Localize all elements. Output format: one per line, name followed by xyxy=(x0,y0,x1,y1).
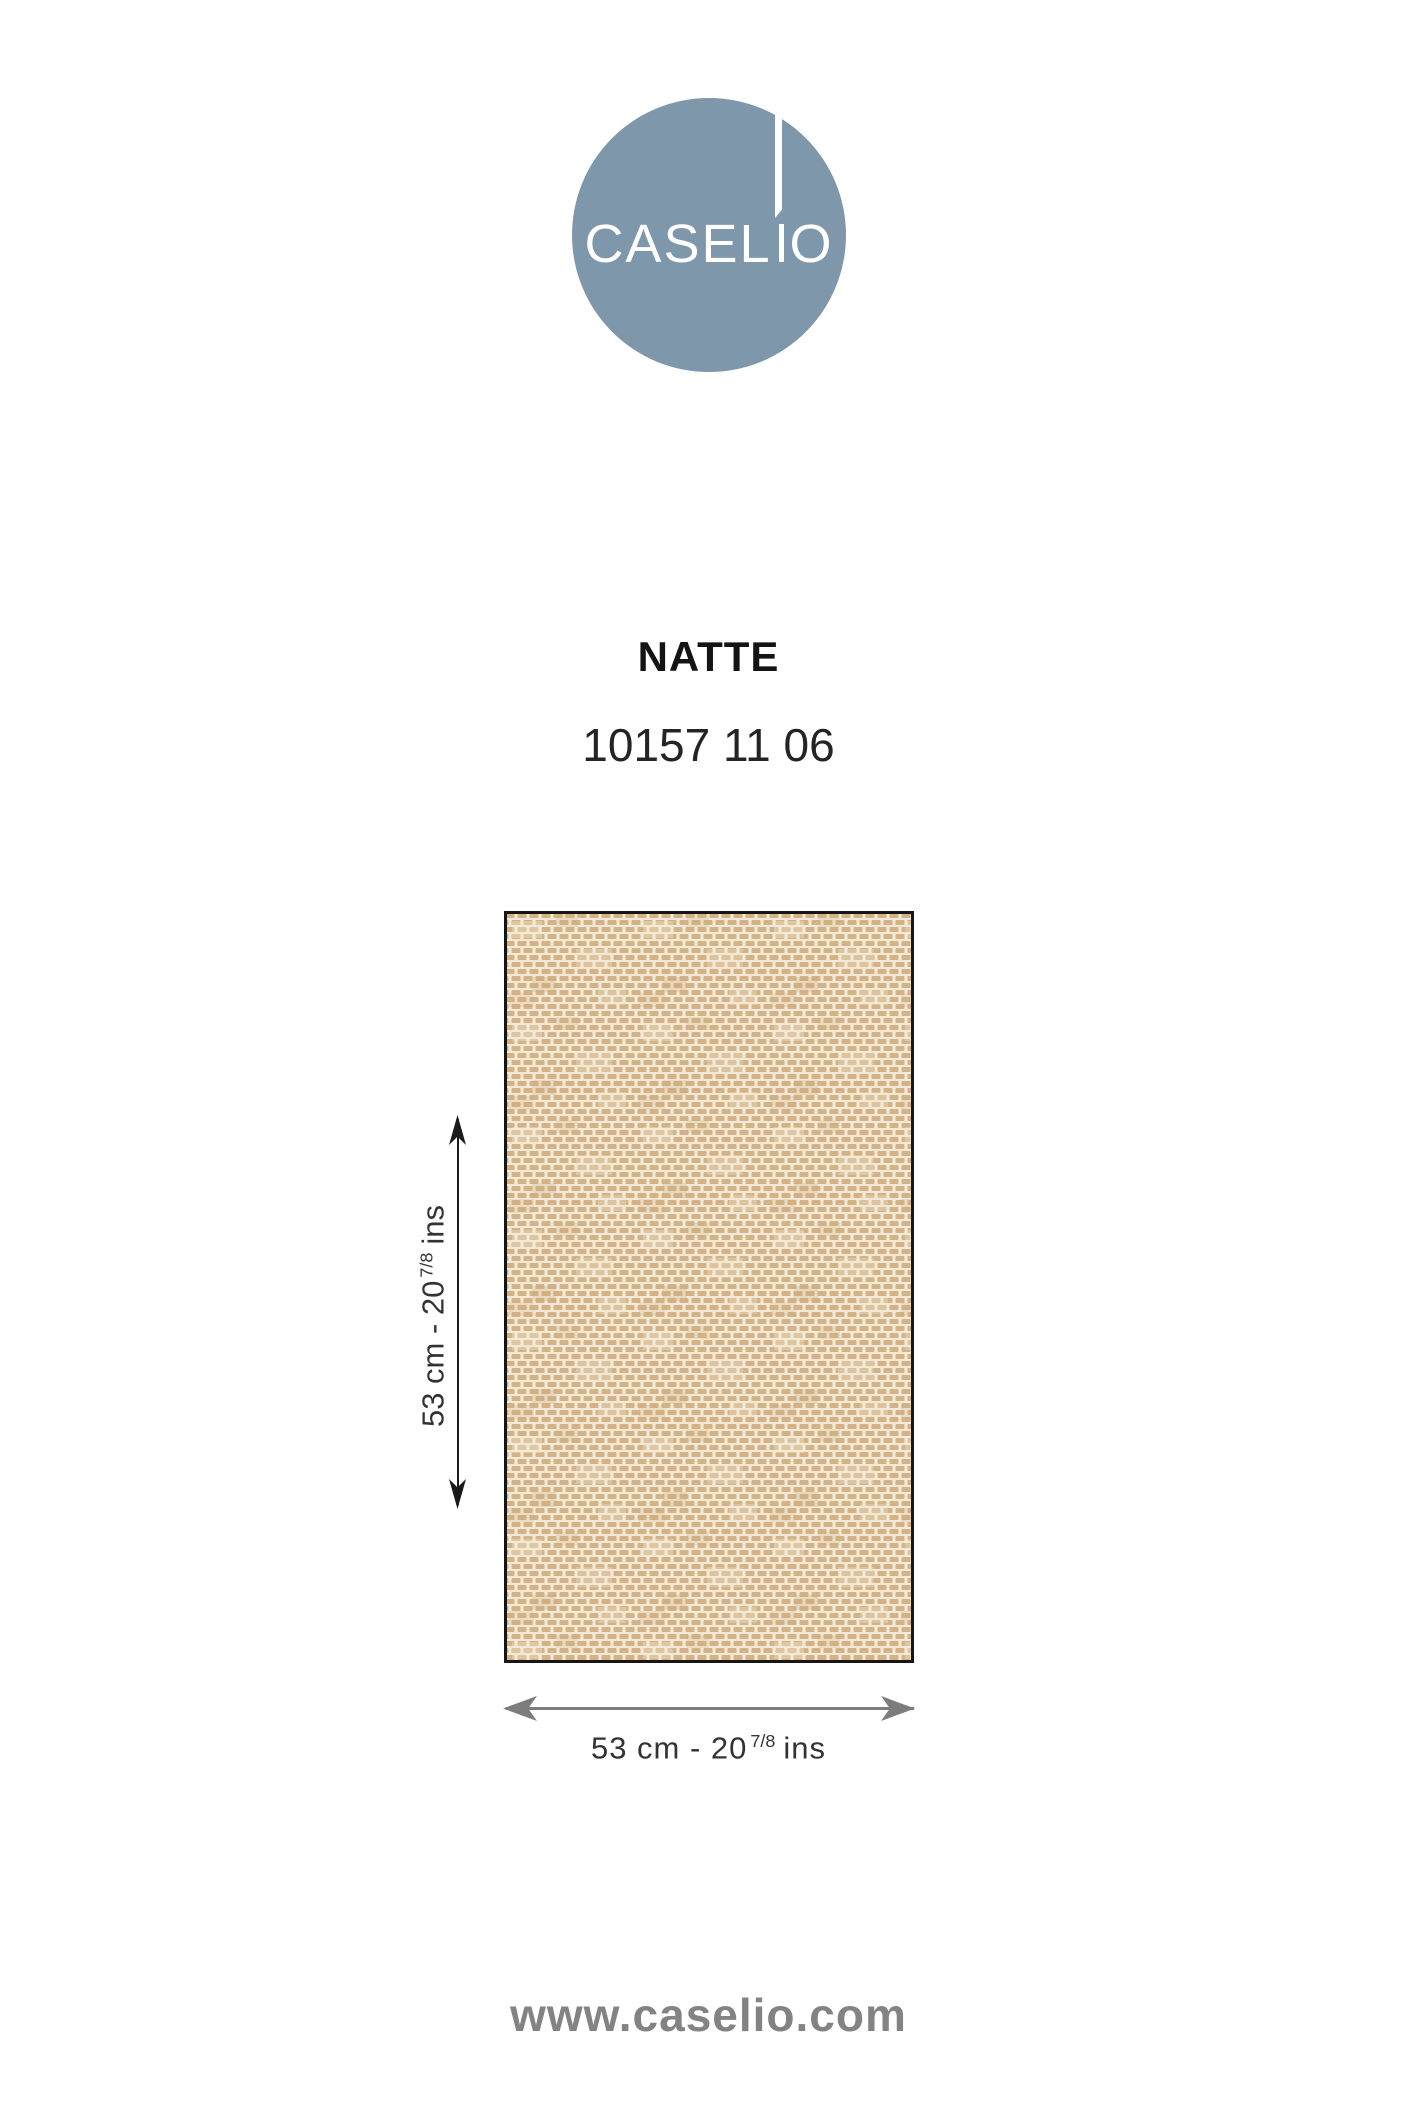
width-dimension-label: 53 cm - 207/8ins xyxy=(0,1732,1417,1763)
spec-sheet-page: CASELO NATTE 10157 11 06 xyxy=(0,0,1417,2126)
swatch-mottle-overlay xyxy=(504,911,914,1663)
website-link[interactable]: www.caselio.com xyxy=(0,1992,1417,2038)
logo-i-stem-icon xyxy=(775,98,782,218)
logo-wordmark-post: O xyxy=(790,214,834,274)
logo-wordmark: CASELO xyxy=(584,217,833,271)
vertical-dimension-line xyxy=(457,1119,459,1505)
height-dimension-label: 53 cm - 207/8ins xyxy=(417,1205,448,1427)
caselio-logo: CASELO xyxy=(572,98,846,372)
product-name: NATTE xyxy=(0,636,1417,678)
logo-i-bar-icon xyxy=(779,224,784,262)
height-fraction: 7/8 xyxy=(416,1253,436,1278)
width-fraction: 7/8 xyxy=(750,1731,775,1751)
wallpaper-swatch xyxy=(504,911,914,1663)
horizontal-dimension-line xyxy=(506,1707,914,1710)
product-reference: 10157 11 06 xyxy=(0,722,1417,768)
logo-wordmark-pre: CASEL xyxy=(584,214,771,274)
